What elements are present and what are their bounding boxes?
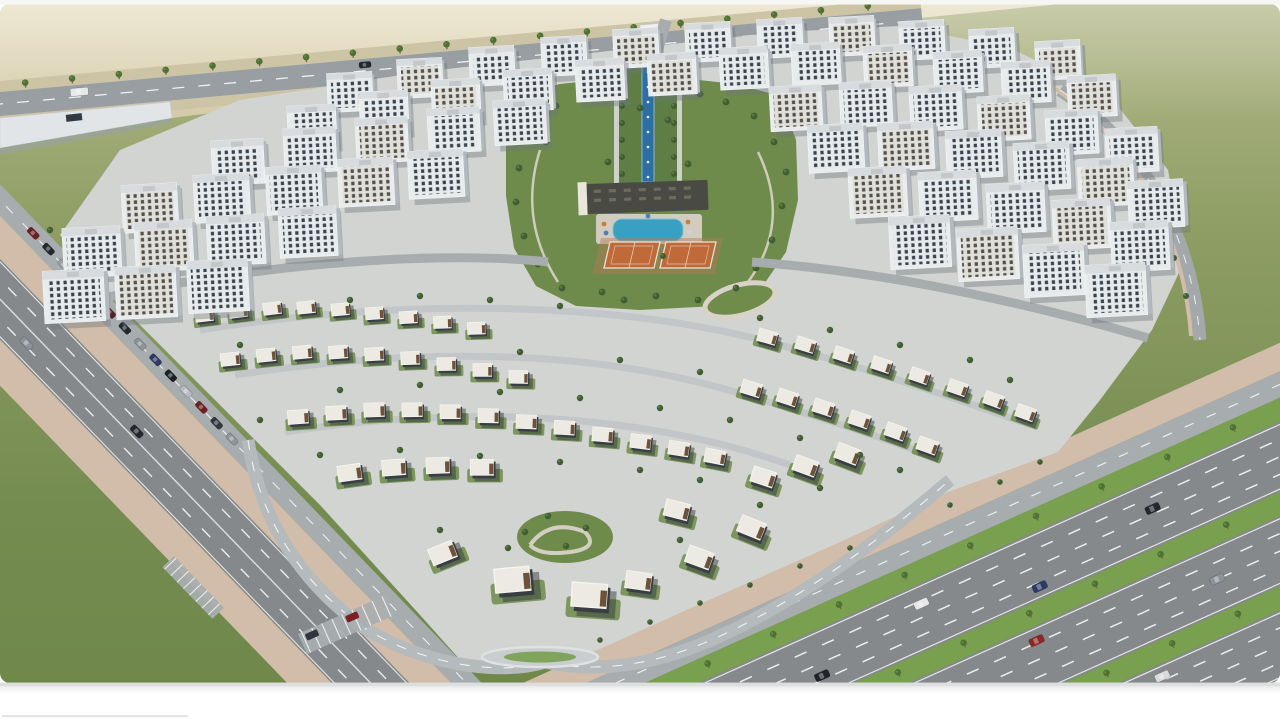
partially-visible-card-edge bbox=[2, 715, 188, 717]
top-white-strip bbox=[0, 0, 1280, 5]
compound-masterplan-render bbox=[0, 0, 1280, 720]
content-bottom-edge bbox=[0, 683, 1280, 687]
aerial-render-residential-compound bbox=[0, 0, 1280, 720]
bottom-bar-shadow bbox=[0, 686, 1280, 696]
